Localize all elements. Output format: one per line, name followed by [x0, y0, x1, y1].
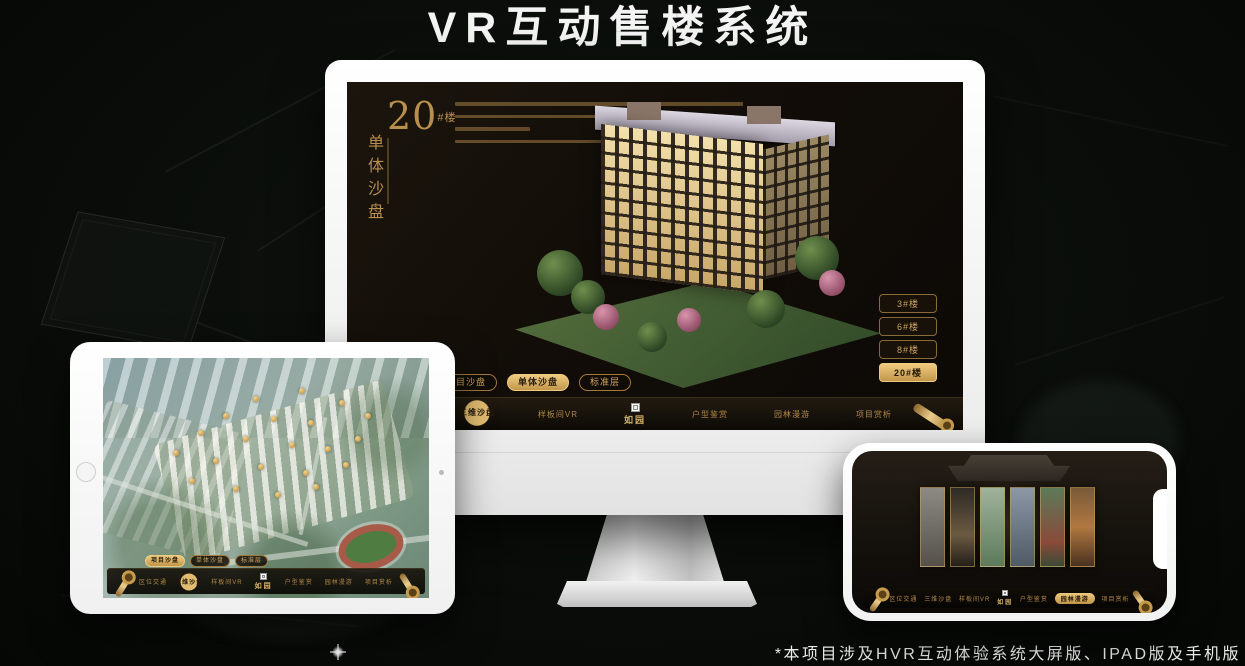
gallery-panel[interactable] — [1040, 487, 1065, 567]
building-marker[interactable] — [271, 416, 277, 422]
nav-item-3d-sandbox[interactable]: 三维沙盘 — [462, 398, 492, 428]
building-marker[interactable] — [189, 478, 195, 484]
building-marker[interactable] — [355, 436, 361, 442]
tablet-screen: 项目沙盘 单体沙盘 标准层 区位交通 三维沙盘 样板间VR 如园 户型鉴赏 园林… — [103, 358, 429, 598]
floor-button-group: 3#楼 6#楼 8#楼 20#楼 — [879, 294, 937, 382]
building-marker[interactable] — [243, 436, 249, 442]
subtitle-divider — [387, 138, 389, 204]
nav-item-showroom-vr[interactable]: 样板间VR — [538, 409, 578, 420]
gallery-panel[interactable] — [950, 487, 975, 567]
building-number-suffix: #楼 — [437, 112, 456, 124]
tablet-device: 项目沙盘 单体沙盘 标准层 区位交通 三维沙盘 样板间VR 如园 户型鉴赏 园林… — [70, 342, 455, 614]
floor-button-20[interactable]: 20#楼 — [879, 363, 937, 382]
background-plaque — [41, 211, 226, 350]
nav-item-garden-roam[interactable]: 园林漫游 — [1055, 593, 1095, 604]
building-marker[interactable] — [213, 458, 219, 464]
seal-icon — [260, 573, 267, 580]
floor-button-3[interactable]: 3#楼 — [879, 294, 937, 313]
brand-logo: 如园 — [997, 590, 1013, 606]
brand-logo-text: 如园 — [255, 581, 273, 591]
phone-navbar: 区位交通 三维沙盘 样板间VR 如园 户型鉴赏 园林漫游 项目赏析 — [864, 588, 1155, 608]
building-marker[interactable] — [253, 396, 259, 402]
building-marker[interactable] — [198, 430, 204, 436]
model-dormer — [627, 102, 661, 120]
tab-single-sandbox[interactable]: 单体沙盘 — [507, 374, 569, 391]
building-marker[interactable] — [233, 486, 239, 492]
tablet-navbar: 区位交通 三维沙盘 样板间VR 如园 户型鉴赏 园林漫游 项目赏析 — [107, 568, 425, 594]
seal-icon — [1002, 590, 1008, 596]
building-marker[interactable] — [173, 450, 179, 456]
building-marker[interactable] — [303, 470, 309, 476]
footnote-text: *本项目涉及HVR互动体验系统大屏版、IPAD版及手机版 — [775, 640, 1241, 664]
nav-item-showroom-vr[interactable]: 样板间VR — [211, 577, 242, 586]
building-model — [497, 140, 897, 395]
tab-project-sandbox[interactable]: 项目沙盘 — [145, 555, 185, 567]
page-title: VR互动售楼系统 — [0, 0, 1245, 56]
phone-notch — [1153, 489, 1167, 569]
monitor-stand-base — [557, 581, 757, 607]
tab-standard-floor[interactable]: 标准层 — [235, 555, 268, 567]
tablet-camera — [439, 470, 444, 475]
nav-item-unit-gallery[interactable]: 户型鉴赏 — [692, 409, 728, 420]
brand-logo: 如园 — [255, 573, 273, 591]
gallery-panel[interactable] — [920, 487, 945, 567]
building-number: 20 — [387, 94, 437, 138]
model-front-facade — [601, 124, 763, 294]
tab-standard-floor[interactable]: 标准层 — [579, 374, 631, 391]
view-tab-group: 项目沙盘 单体沙盘 标准层 — [435, 374, 631, 391]
tree — [747, 290, 785, 328]
phone-screen: 区位交通 三维沙盘 样板间VR 如园 户型鉴赏 园林漫游 项目赏析 — [852, 451, 1167, 613]
building-marker[interactable] — [258, 464, 264, 470]
floor-button-6[interactable]: 6#楼 — [879, 317, 937, 336]
seal-icon — [631, 403, 640, 412]
sparkle — [330, 644, 346, 660]
monitor-stand — [585, 513, 725, 585]
nav-item-garden-roam[interactable]: 园林漫游 — [774, 409, 810, 420]
nav-item-project-view[interactable]: 项目赏析 — [856, 409, 892, 420]
nav-item-garden-roam[interactable]: 园林漫游 — [325, 577, 353, 586]
nav-item-location[interactable]: 区位交通 — [139, 577, 167, 586]
gallery-panel[interactable] — [1070, 487, 1095, 567]
gallery-panels — [920, 487, 1095, 567]
map-line — [1015, 296, 1225, 366]
courtyard-roof — [948, 455, 1070, 481]
pink-tree — [593, 304, 619, 330]
building-marker[interactable] — [223, 413, 229, 419]
gallery-panel[interactable] — [980, 487, 1005, 567]
model-dormer — [747, 106, 781, 124]
building-marker[interactable] — [289, 442, 295, 448]
tab-single-sandbox[interactable]: 单体沙盘 — [190, 555, 230, 567]
building-marker[interactable] — [339, 400, 345, 406]
nav-item-unit-gallery[interactable]: 户型鉴赏 — [285, 577, 313, 586]
nav-item-unit-gallery[interactable]: 户型鉴赏 — [1020, 594, 1048, 603]
building-marker[interactable] — [308, 420, 314, 426]
building-marker[interactable] — [275, 492, 281, 498]
building-subtitle: 单体沙盘 — [361, 134, 385, 226]
tablet-home-button[interactable] — [76, 462, 96, 482]
building-marker[interactable] — [299, 388, 305, 394]
building-marker[interactable] — [343, 462, 349, 468]
nav-item-project-view[interactable]: 项目赏析 — [1102, 594, 1130, 603]
nav-item-showroom-vr[interactable]: 样板间VR — [959, 594, 990, 603]
nav-item-3d-sandbox[interactable]: 三维沙盘 — [924, 594, 952, 603]
brand-logo: 如园 — [624, 403, 646, 426]
nav-item-3d-sandbox[interactable]: 三维沙盘 — [179, 572, 199, 592]
nav-item-project-view[interactable]: 项目赏析 — [365, 577, 393, 586]
tablet-view-tabs: 项目沙盘 单体沙盘 标准层 — [145, 555, 268, 567]
gallery-panel[interactable] — [1010, 487, 1035, 567]
brand-logo-text: 如园 — [624, 413, 646, 426]
pink-tree — [677, 308, 701, 332]
building-marker[interactable] — [365, 413, 371, 419]
building-marker[interactable] — [313, 484, 319, 490]
map-line — [992, 95, 1227, 147]
nav-item-location[interactable]: 区位交通 — [889, 594, 917, 603]
floor-button-8[interactable]: 8#楼 — [879, 340, 937, 359]
stage: VR互动售楼系统 20#楼 单体沙盘 — [0, 0, 1245, 666]
pink-tree — [819, 270, 845, 296]
phone-device: 区位交通 三维沙盘 样板间VR 如园 户型鉴赏 园林漫游 项目赏析 — [843, 443, 1176, 621]
tree — [637, 322, 667, 352]
building-marker[interactable] — [325, 446, 331, 452]
building-title: 20#楼 — [387, 96, 456, 136]
brand-logo-text: 如园 — [997, 597, 1013, 606]
